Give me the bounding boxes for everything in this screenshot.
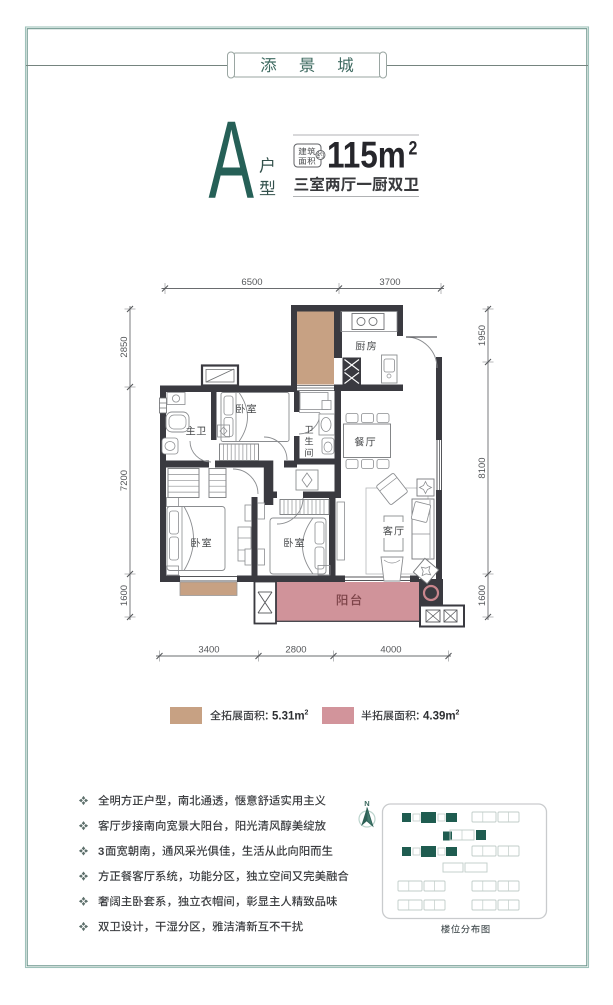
svg-text:6500: 6500 (241, 277, 262, 288)
svg-text:1950: 1950 (477, 325, 488, 346)
svg-text:2: 2 (409, 137, 418, 159)
svg-text:3700: 3700 (379, 277, 400, 288)
svg-text:1600: 1600 (477, 585, 488, 606)
svg-text:8100: 8100 (477, 457, 488, 478)
svg-text:4.39m: 4.39m (423, 711, 456, 723)
svg-text:5.31m: 5.31m (272, 711, 305, 723)
svg-text:2: 2 (305, 710, 309, 717)
svg-text:2800: 2800 (285, 645, 306, 656)
svg-text:4000: 4000 (380, 645, 401, 656)
svg-text:A: A (209, 99, 254, 222)
svg-text:2: 2 (456, 710, 460, 717)
svg-text:115m: 115m (327, 135, 406, 176)
svg-text:3400: 3400 (198, 645, 219, 656)
svg-text:N: N (364, 799, 369, 808)
svg-text:7200: 7200 (119, 470, 130, 491)
svg-text:3: 3 (98, 846, 104, 858)
svg-text:2850: 2850 (119, 336, 130, 357)
svg-text:1600: 1600 (119, 585, 130, 606)
